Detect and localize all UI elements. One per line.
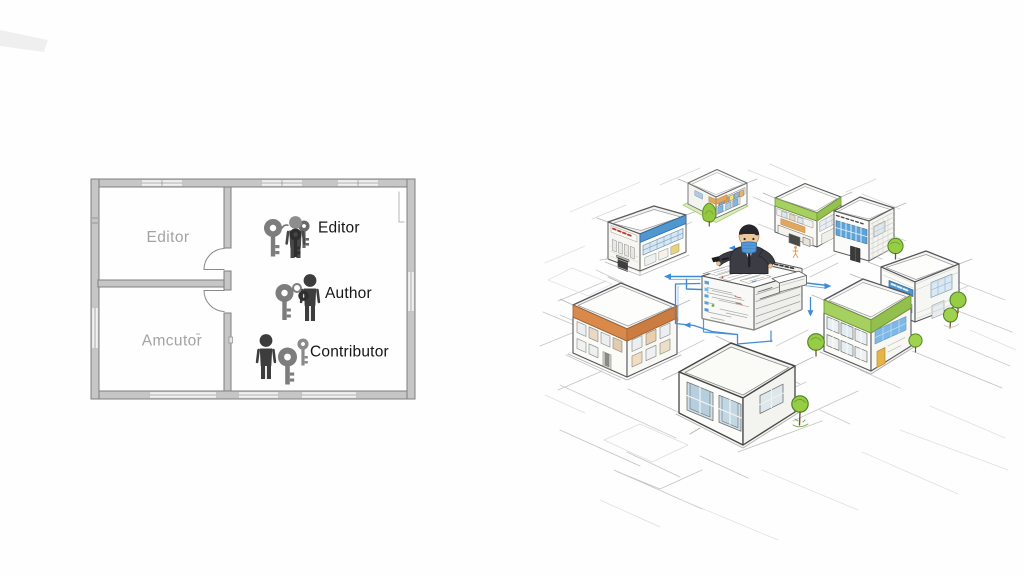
svg-text:Contributor: Contributor: [310, 344, 389, 361]
svg-text:Editor: Editor: [147, 229, 190, 246]
svg-text:Amcutor: Amcutor: [142, 333, 203, 350]
svg-text:Author: Author: [325, 285, 372, 302]
svg-text:Editor: Editor: [318, 220, 360, 237]
